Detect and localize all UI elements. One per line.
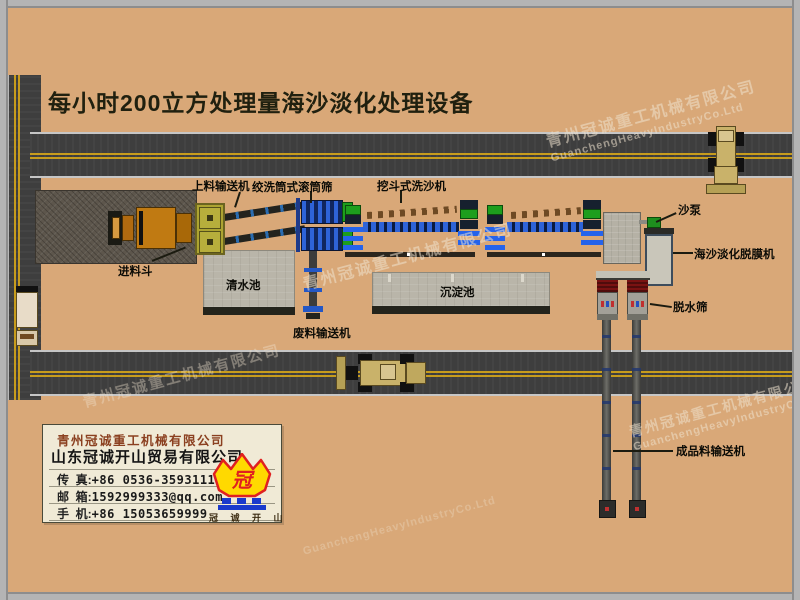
top-road xyxy=(30,132,792,178)
loader-top-road xyxy=(706,124,746,194)
company-logo: 冠 冠 诚 开 山 xyxy=(209,453,275,519)
product-conveyor-end xyxy=(629,500,646,518)
email-row: 邮 箱:1592999333@qq.com xyxy=(57,488,223,505)
loader-on-stockpile xyxy=(108,205,194,251)
product-conveyor xyxy=(632,320,641,500)
loader-bottom-road xyxy=(336,352,432,394)
phone-value: +86 15053659999 xyxy=(92,507,208,521)
fax-row: 传 真:+86 0536-3593111 xyxy=(57,471,215,488)
email-value: 1592999333@qq.com xyxy=(92,490,223,504)
waste-conveyor-end xyxy=(306,313,320,319)
dewatering-screen xyxy=(627,280,648,320)
product-conveyor-label: 成品料输送机 xyxy=(676,443,745,459)
desalination-platform xyxy=(603,212,641,264)
loading-conveyor-belt xyxy=(223,225,305,245)
frame-border xyxy=(0,0,8,600)
feed-hopper-label: 进料斗 xyxy=(118,263,153,279)
watermark-en: GuanchengHeavyIndustryCo.Ltd xyxy=(302,494,498,559)
watermark: GuanchengHeavyIndustryCo.Ltd xyxy=(302,494,498,559)
frame-border xyxy=(0,0,800,8)
sand-pump-label: 沙泵 xyxy=(678,202,701,218)
feed-hopper xyxy=(195,203,225,255)
drum-screen-label: 绞洗筒式滚筒筛 xyxy=(252,179,333,195)
drum-screen-machine xyxy=(296,198,352,252)
plant-layout-diagram: 每小时200立方处理量海沙淡化处理设备 xyxy=(0,0,800,600)
product-conveyor-end xyxy=(599,500,616,518)
loading-conveyor-label: 上料输送机 xyxy=(192,178,250,194)
email-label: 邮 箱 xyxy=(57,490,88,504)
desalination-machine-label: 海沙淡化脱膜机 xyxy=(694,246,775,262)
company-info-card: 青州冠诚重工机械有限公司 山东冠诚开山贸易有限公司 传 真:+86 0536-3… xyxy=(42,424,282,523)
fax-label: 传 真 xyxy=(57,473,88,487)
dewatering-screen-label: 脱水筛 xyxy=(673,299,708,315)
diagram-title: 每小时200立方处理量海沙淡化处理设备 xyxy=(48,84,473,118)
crown-logo-icon: 冠 xyxy=(209,453,275,511)
sedimentation-pool-label: 沉淀池 xyxy=(440,284,475,300)
frame-border xyxy=(792,0,800,600)
bucket-washer-label: 挖斗式洗沙机 xyxy=(377,178,446,194)
pump-pipe xyxy=(639,220,647,224)
frame-border xyxy=(0,592,800,600)
phone-row: 手 机:+86 15053659999 xyxy=(57,505,208,522)
logo-caption: 冠 诚 开 山 xyxy=(209,511,275,524)
product-conveyor xyxy=(602,320,611,500)
clean-water-pool-label: 清水池 xyxy=(226,277,261,293)
bucket-washer-unit xyxy=(345,200,478,258)
waste-conveyor xyxy=(309,250,317,312)
bucket-washer-unit xyxy=(487,200,603,258)
phone-label: 手 机 xyxy=(57,507,88,521)
dewatering-frame-bar xyxy=(596,271,650,280)
truck-left-road xyxy=(14,286,40,348)
logo-glyph: 冠 xyxy=(231,470,255,492)
waste-conveyor-label: 废料输送机 xyxy=(293,325,351,341)
dewatering-screen xyxy=(597,280,618,320)
fax-value: +86 0536-3593111 xyxy=(92,473,216,487)
